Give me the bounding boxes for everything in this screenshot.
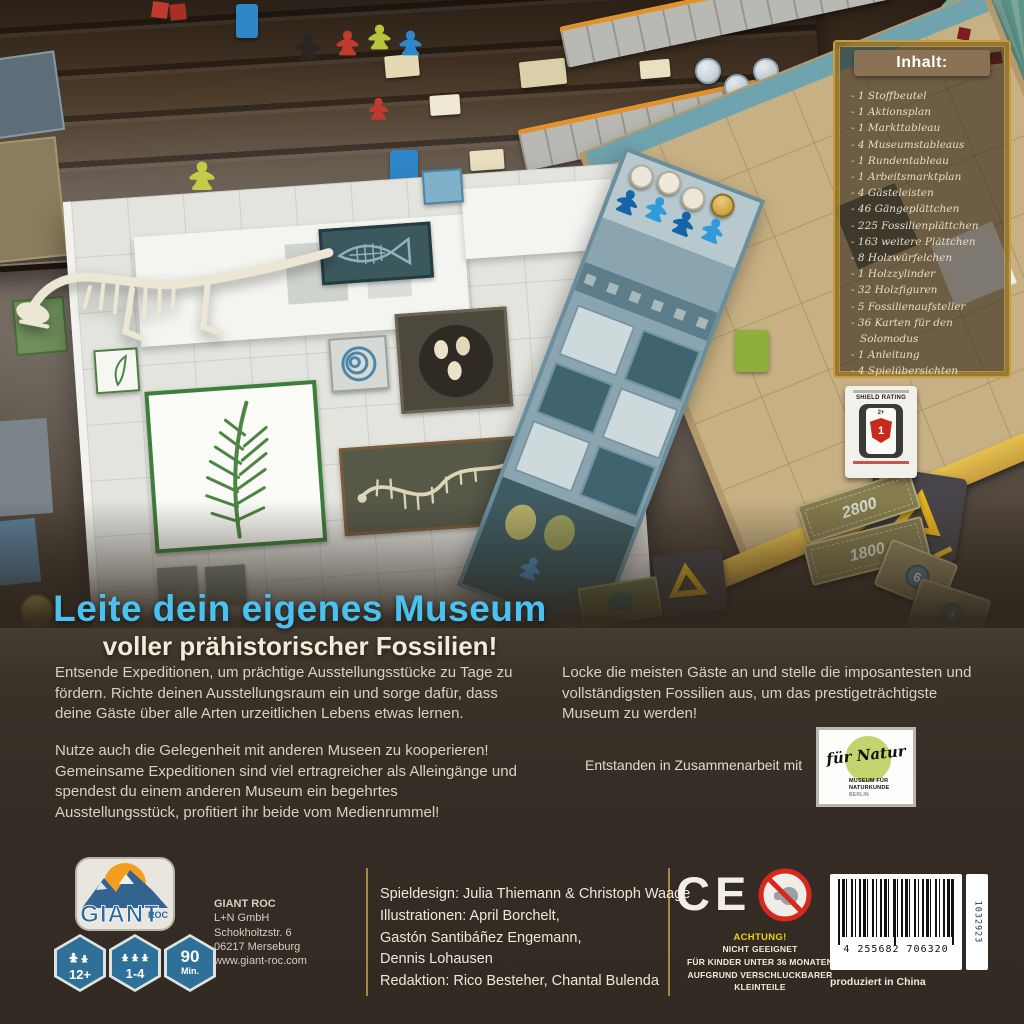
giant-roc-logo: GIANT ROC xyxy=(74,856,176,932)
guest-cell xyxy=(536,362,613,435)
duration-value: 90 xyxy=(181,948,200,965)
inhalt-item: 8 Holzwürfelchen xyxy=(851,250,1001,266)
publisher-address: GIANT ROC L+N GmbH Schokholtzstr. 6 0621… xyxy=(214,897,307,968)
badge-fine-print xyxy=(853,390,909,393)
guest-cell xyxy=(558,304,635,377)
inhalt-title: Inhalt: xyxy=(854,50,990,76)
card-tile xyxy=(384,54,420,79)
address-line: Schokholtzstr. 6 xyxy=(214,926,307,940)
shield-icon: 1 xyxy=(870,418,892,443)
inhalt-item: 163 weitere Plättchen xyxy=(851,234,1001,250)
body-paragraph: Locke die meisten Gäste an und stelle di… xyxy=(562,663,986,725)
coin-icon xyxy=(695,58,721,84)
game-info-badges: 12+ 1-4 90 Min. xyxy=(54,934,216,992)
guard-bar xyxy=(838,879,840,945)
credit-line: Spieldesign: Julia Thiemann & Christoph … xyxy=(380,884,690,906)
red-cube xyxy=(169,3,187,21)
inhalt-item: 5 Fossilienaufsteller xyxy=(851,299,1001,315)
logo-line: BERLIN xyxy=(849,792,889,799)
meeple-icon xyxy=(331,26,364,57)
credit-line: Gastón Santibáñez Engemann, xyxy=(380,928,690,950)
credit-line: Redaktion: Rico Besteher, Chantal Bulend… xyxy=(380,971,690,993)
logo-line: NATURKUNDE xyxy=(849,785,889,792)
inhalt-list: 1 Stoffbeutel 1 Aktionsplan 1 Markttable… xyxy=(851,88,1001,380)
duration-badge: 90 Min. xyxy=(164,934,216,992)
footer-divider xyxy=(366,868,368,996)
credit-line: Dennis Lohausen xyxy=(380,949,690,971)
meeple-icon xyxy=(183,156,221,192)
inhalt-item: 1 Anleitung xyxy=(851,347,1001,363)
address-line: GIANT ROC xyxy=(214,897,307,911)
guard-bar xyxy=(952,879,954,945)
card-tile xyxy=(429,94,460,116)
badge-url-line xyxy=(853,461,909,464)
logo-line: MUSEUM FÜR xyxy=(849,778,889,785)
inhalt-item: 1 Stoffbeutel xyxy=(851,88,1001,104)
meeple-icon xyxy=(394,26,427,57)
egg-nest-tile xyxy=(395,306,514,414)
action-chip xyxy=(422,168,464,205)
ammonite-icon xyxy=(333,340,384,387)
inhalt-panel: Inhalt: 1 Stoffbeutel 1 Aktionsplan 1 Ma… xyxy=(833,40,1011,378)
card-tile xyxy=(519,58,567,89)
card-tile xyxy=(469,149,504,171)
inhalt-item: 1 Arbeitsmarktplan xyxy=(851,169,1001,185)
made-in-label: produziert in China xyxy=(830,976,926,988)
choking-hazard-icon xyxy=(756,866,814,924)
box-back: 2800 1800 6 4 Plättchenlegespiel mit pos xyxy=(0,0,1024,1024)
credits-block: Spieldesign: Julia Thiemann & Christoph … xyxy=(380,884,690,993)
inhalt-item: 36 Karten für den Solomodus xyxy=(851,315,1001,347)
duration-unit: Min. xyxy=(181,965,199,978)
side-board xyxy=(0,50,65,139)
green-tile xyxy=(735,330,769,372)
die xyxy=(957,27,971,41)
person-icon xyxy=(67,946,93,968)
shield-age: 2+ xyxy=(866,410,896,416)
guest-cell xyxy=(601,387,678,460)
headline-line2: voller prähistorischer Fossilien! xyxy=(28,631,572,662)
barcode: 4 255682 706320 xyxy=(830,874,962,970)
shield-rating-value: 1 xyxy=(878,425,884,437)
fish-fossil-icon xyxy=(332,231,419,277)
ammonite-tile xyxy=(328,335,390,393)
credit-line: Illustrationen: April Borchelt, xyxy=(380,906,690,928)
meeple-icon xyxy=(363,20,396,51)
guest-cell xyxy=(514,420,591,493)
barcode-bars xyxy=(838,879,954,937)
inhalt-item: 1 Markttableau xyxy=(851,120,1001,136)
red-cube xyxy=(151,1,169,19)
inhalt-item: 1 Holzzylinder xyxy=(851,266,1001,282)
inhalt-item: 1 Rundentableau xyxy=(851,153,1001,169)
ce-mark: CE xyxy=(676,866,751,921)
board-photo: 2800 1800 6 4 Plättchenlegespiel mit pos xyxy=(0,0,1024,640)
card-tile xyxy=(639,59,670,80)
guest-cell xyxy=(624,329,701,402)
headline-line1: Leite dein eigenes Museum xyxy=(28,588,572,630)
meeple-icon xyxy=(364,94,393,121)
meeple-icon xyxy=(290,28,326,62)
shield-card-holder: 2+ 1 xyxy=(859,404,903,458)
brand-sub: ROC xyxy=(148,910,169,920)
inhalt-item: 1 Aktionsplan xyxy=(851,104,1001,120)
address-line: www.giant-roc.com xyxy=(214,954,307,968)
article-number-tab: 1032923 xyxy=(966,874,988,970)
museum-naturkunde-logo: für Natur MUSEUM FÜR NATURKUNDE BERLIN xyxy=(816,727,916,807)
inhalt-item: 32 Holzfiguren xyxy=(851,282,1001,298)
inhalt-item: 4 Spielübersichten xyxy=(851,363,1001,379)
dino-skeleton-icon xyxy=(10,222,344,353)
inhalt-item: 4 Gästeleisten xyxy=(851,185,1001,201)
guard-bar xyxy=(894,879,896,945)
inhalt-item: 4 Museumstableaus xyxy=(851,137,1001,153)
players-icon xyxy=(120,947,150,967)
body-paragraph: Nutze auch die Gelegenheit mit anderen M… xyxy=(55,741,523,824)
barcode-number: 4 255682 706320 xyxy=(838,944,954,955)
blue-brick xyxy=(236,4,258,38)
shield-rating-badge: SHIELD RATING 2+ 1 xyxy=(845,386,917,478)
leaf-icon xyxy=(98,352,136,390)
age-badge: 12+ xyxy=(54,934,106,992)
inhalt-item: 46 Gängeplättchen xyxy=(851,201,1001,217)
headline: Leite dein eigenes Museum voller prähist… xyxy=(28,588,572,662)
body-paragraph: Entsende Expeditionen, um prächtige Auss… xyxy=(55,663,523,725)
shield-rating-title: SHIELD RATING xyxy=(845,395,917,401)
leaf-tile xyxy=(93,347,140,394)
age-value: 12+ xyxy=(69,968,91,981)
body-right-column: Locke die meisten Gäste an und stelle di… xyxy=(562,663,986,725)
body-left-column: Entsende Expeditionen, um prächtige Auss… xyxy=(55,663,523,824)
address-line: 06217 Merseburg xyxy=(214,940,307,954)
shield-card: 2+ 1 xyxy=(866,408,896,454)
collaboration-label: Entstanden in Zusammenarbeit mit xyxy=(585,757,802,773)
article-number: 1032923 xyxy=(972,901,982,944)
logo-text-lines: MUSEUM FÜR NATURKUNDE BERLIN xyxy=(849,778,889,799)
inhalt-item: 225 Fossilienplättchen xyxy=(851,218,1001,234)
players-value: 1-4 xyxy=(126,967,145,980)
players-badge: 1-4 xyxy=(109,934,161,992)
address-line: L+N GmbH xyxy=(214,911,307,925)
